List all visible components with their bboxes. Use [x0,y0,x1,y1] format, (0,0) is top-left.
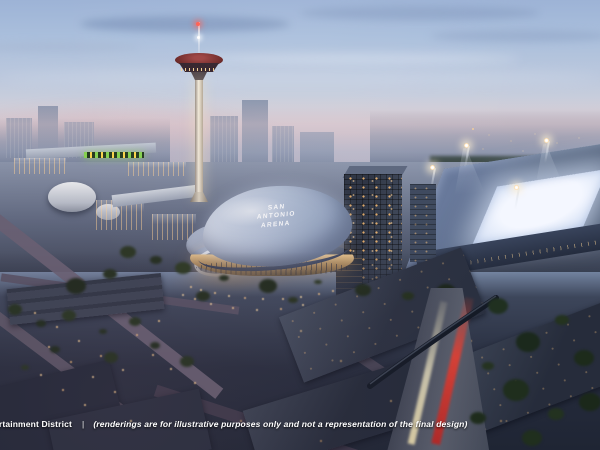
tower-of-the-americas [168,22,232,197]
campus-building [14,158,66,174]
cloud [430,30,600,42]
mast-light [430,165,435,170]
tree-cluster [488,298,508,314]
tree-cluster [8,304,22,315]
district-label: ertainment District [0,419,72,429]
tree-cluster [120,246,136,258]
office-tower-secondary [410,184,436,262]
marquee-sign [84,152,144,158]
cloud [190,54,520,64]
caption-overlay: ertainment District|(renderings are for … [0,419,467,429]
caption-separator: | [82,419,84,429]
round-pavilion [48,182,96,212]
aerial-district-rendering: SAN ANTONIO ARENA ertainment District|(r… [0,0,600,450]
cloud [300,6,540,20]
street-lights [34,312,36,314]
red-beacon-light [196,22,200,26]
mast-light [544,138,549,143]
distant-city-lights [472,128,474,130]
plaza-lights [190,286,192,288]
scattered-window-lights [300,330,302,332]
cloud [0,70,600,86]
deck-window-lights [181,68,217,71]
white-strobe-light [197,36,200,39]
disclaimer-text: (renderings are for illustrative purpose… [93,419,467,429]
mast-light [514,185,519,190]
mast-light [464,143,469,148]
